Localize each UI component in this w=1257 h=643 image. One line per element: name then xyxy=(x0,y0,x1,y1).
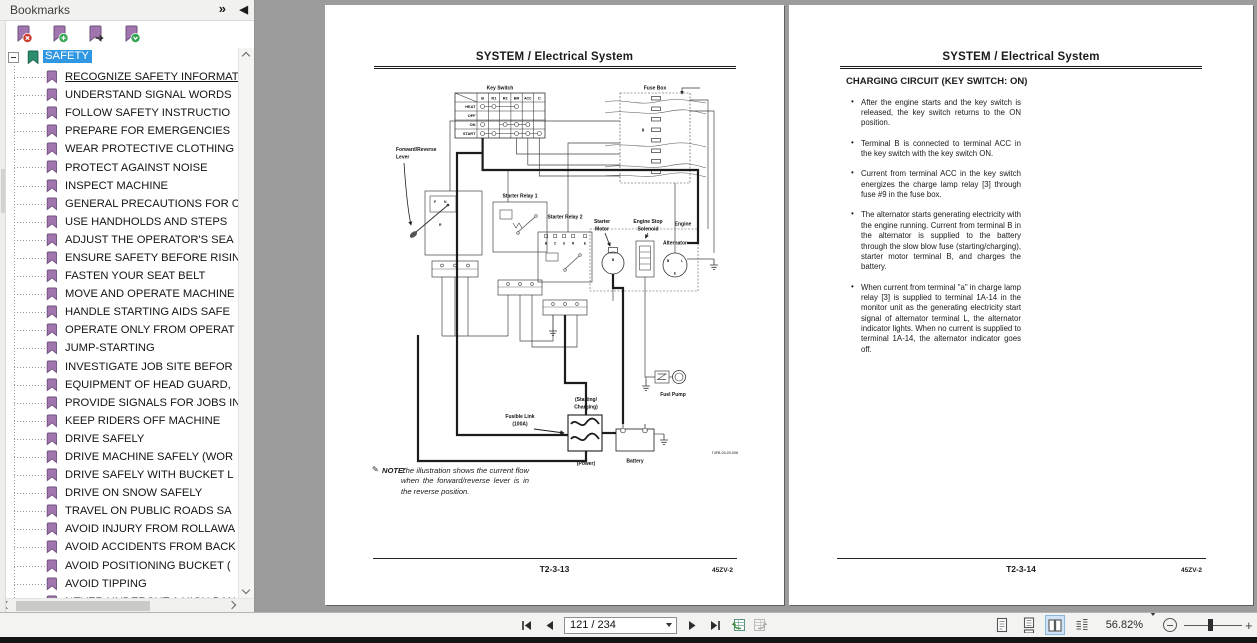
bookmark-item-label[interactable]: RECOGNIZE SAFETY INFORMAT xyxy=(65,71,238,83)
zoom-level[interactable]: 56.82% xyxy=(1099,619,1143,631)
scroll-right-icon[interactable] xyxy=(228,601,236,609)
bookmark-item-label[interactable]: PROVIDE SIGNALS FOR JOBS IN xyxy=(65,397,238,409)
bookmark-item-label[interactable]: GENERAL PRECAUTIONS FOR C xyxy=(65,198,238,210)
electrical-diagram: Key Switch B R1 R2 BR ACC C HEAT OFF ON … xyxy=(350,83,760,473)
doc-code: 45ZV-2 xyxy=(1181,567,1202,574)
zoom-slider-handle[interactable] xyxy=(1208,619,1213,631)
bookmark-item-label[interactable]: JUMP-STARTING xyxy=(65,342,155,354)
page-number-value[interactable]: 121 / 234 xyxy=(565,619,662,631)
bookmark-item-label[interactable]: AVOID POSITIONING BUCKET ( xyxy=(65,560,231,572)
engine-label: Engine xyxy=(675,222,692,228)
zoom-slider-track[interactable] xyxy=(1184,625,1242,626)
bookmark-item[interactable]: WEAR PROTECTIVE CLOTHING xyxy=(7,140,238,158)
alternator-b: B xyxy=(667,259,670,263)
scrollbar-thumb[interactable] xyxy=(16,601,150,611)
bullet-item: •After the engine starts and the key swi… xyxy=(861,98,1021,129)
bullet-marker: • xyxy=(851,138,854,149)
bookmark-item-label[interactable]: INSPECT MACHINE xyxy=(65,180,168,192)
expand-bookmark-button[interactable] xyxy=(124,25,141,44)
bookmark-item[interactable]: INVESTIGATE JOB SITE BEFOR xyxy=(7,358,238,376)
lever-f: F xyxy=(434,200,436,204)
remove-bookmark-button[interactable] xyxy=(16,25,33,44)
bookmark-item[interactable]: ENSURE SAFETY BEFORE RISIN xyxy=(7,249,238,267)
previous-view-button[interactable] xyxy=(730,616,746,634)
bookmark-expand-icon xyxy=(124,25,141,44)
bookmark-item[interactable]: ADJUST THE OPERATOR'S SEA xyxy=(7,231,238,249)
bookmark-item[interactable]: FASTEN YOUR SEAT BELT xyxy=(7,267,238,285)
relay2-r: R xyxy=(572,242,575,246)
bookmark-item-label[interactable]: AVOID ACCIDENTS FROM BACK xyxy=(65,541,236,553)
key-row-heat: HEAT xyxy=(465,104,476,109)
bookmark-item-label[interactable]: ADJUST THE OPERATOR'S SEA xyxy=(65,234,234,246)
relay2-s: S xyxy=(563,242,565,246)
zoom-in-button[interactable]: + xyxy=(1245,618,1253,633)
next-bookmark-button[interactable] xyxy=(88,25,105,44)
bookmark-item[interactable]: USE HANDHOLDS AND STEPS xyxy=(7,213,238,231)
key-col-r1: R1 xyxy=(491,96,497,101)
collapse-node-icon[interactable] xyxy=(8,52,19,63)
bookmark-item-label[interactable]: DRIVE SAFELY WITH BUCKET L xyxy=(65,469,233,481)
bullet-marker: • xyxy=(851,168,854,179)
bookmark-item-label[interactable]: DRIVE ON SNOW SAFELY xyxy=(65,487,202,499)
next-view-button[interactable] xyxy=(753,616,769,634)
pdf-reader-window: Bookmarks » ◀ xyxy=(0,0,1257,643)
bookmark-item-label[interactable]: EQUIPMENT OF HEAD GUARD, xyxy=(65,379,231,391)
footer-rule xyxy=(373,558,737,559)
lever-label-2: Lever xyxy=(396,155,409,161)
key-col-br: BR xyxy=(514,96,520,101)
panel-collapse-icon[interactable]: ◀ xyxy=(240,3,248,16)
bookmark-item-label[interactable]: HANDLE STARTING AIDS SAFE xyxy=(65,306,230,318)
bullet-item: •Current from terminal ACC in the key sw… xyxy=(861,169,1021,200)
bookmark-item[interactable]: MOVE AND OPERATE MACHINE xyxy=(7,285,238,303)
bookmark-root-row[interactable]: SAFETY xyxy=(7,48,238,67)
scroll-down-icon[interactable] xyxy=(242,586,250,594)
bookmarks-panel-title: Bookmarks xyxy=(10,3,70,17)
panel-tab-strip xyxy=(0,21,6,612)
key-row-off: OFF xyxy=(468,113,476,118)
fuel-pump-label: Fuel Pump xyxy=(660,392,686,398)
bookmark-item-label[interactable]: TRAVEL ON PUBLIC ROADS SA xyxy=(65,505,232,517)
bookmarks-tree: SAFETY RECOGNIZE SAFETY INFORMAT UNDERST… xyxy=(7,48,238,598)
bookmarks-panel: Bookmarks » ◀ xyxy=(0,0,255,612)
figure-code: T4FB-03-03-006 xyxy=(712,451,738,455)
bookmarks-horizontal-scrollbar[interactable] xyxy=(0,598,254,612)
bookmark-list: RECOGNIZE SAFETY INFORMAT UNDERSTAND SIG… xyxy=(7,68,238,598)
bookmark-item-label[interactable]: AVOID INJURY FROM ROLLAWA xyxy=(65,523,235,535)
bookmark-item[interactable]: RECOGNIZE SAFETY INFORMAT xyxy=(7,68,238,86)
lever-r: R xyxy=(439,223,442,227)
bullet-list: •After the engine starts and the key swi… xyxy=(861,98,1021,356)
key-switch-label: Key Switch xyxy=(487,86,514,92)
bookmark-root-label[interactable]: SAFETY xyxy=(43,50,92,63)
zoom-controls: 56.82% + xyxy=(991,613,1257,637)
next-view-icon xyxy=(753,617,769,633)
continuous-view-button[interactable] xyxy=(1018,615,1038,635)
page-title: SYSTEM / Electrical System xyxy=(325,51,784,63)
starter-motor-label-1: Starter xyxy=(594,219,610,225)
page-combo-caret-icon[interactable] xyxy=(662,618,676,633)
starter-motor-b: B xyxy=(612,258,615,262)
last-page-button[interactable] xyxy=(707,616,723,634)
zoom-slider[interactable] xyxy=(1184,617,1242,633)
bookmark-item[interactable]: DRIVE MACHINE SAFELY (WOR xyxy=(7,448,238,466)
key-col-acc: ACC xyxy=(524,97,532,101)
key-col-r2: R2 xyxy=(503,96,509,101)
bookmark-delete-icon xyxy=(16,25,33,44)
bookmark-item[interactable]: HANDLE STARTING AIDS SAFE xyxy=(7,303,238,321)
bookmark-item[interactable]: PROVIDE SIGNALS FOR JOBS IN xyxy=(7,394,238,412)
bullet-item: •Terminal B is connected to terminal ACC… xyxy=(861,139,1021,160)
bookmark-item-label[interactable]: WEAR PROTECTIVE CLOTHING xyxy=(65,143,234,155)
bookmark-item-label[interactable]: DRIVE MACHINE SAFELY (WOR xyxy=(65,451,233,463)
zoom-options-caret-icon[interactable] xyxy=(1150,616,1156,634)
starter-motor-label-2: Motor xyxy=(595,227,609,233)
bookmark-item-label[interactable]: KEEP RIDERS OFF MACHINE xyxy=(65,415,220,427)
bookmark-item[interactable]: FOLLOW SAFETY INSTRUCTIO xyxy=(7,104,238,122)
bookmark-item-label[interactable]: DRIVE SAFELY xyxy=(65,433,144,445)
zoom-out-button[interactable] xyxy=(1163,618,1177,632)
document-area: SYSTEM / Electrical System Key Switch B … xyxy=(256,0,1257,612)
bookmark-item[interactable]: JUMP-STARTING xyxy=(7,339,238,357)
bookmarks-vertical-scrollbar[interactable] xyxy=(238,48,254,598)
fusible-link-label-1: Fusible Link xyxy=(505,414,534,420)
bookmark-item[interactable]: PREPARE FOR EMERGENCIES xyxy=(7,122,238,140)
page-right: SYSTEM / Electrical System CHARGING CIRC… xyxy=(789,5,1253,605)
bookmark-item[interactable]: AVOID ACCIDENTS FROM BACK xyxy=(7,538,238,556)
solenoid-label-1: Engine Stop xyxy=(633,219,662,225)
lever-n: N xyxy=(444,200,447,204)
alternator-e: E xyxy=(674,272,676,276)
bullet-item: •The alternator starts generating electr… xyxy=(861,210,1021,272)
bookmark-item[interactable]: INSPECT MACHINE xyxy=(7,177,238,195)
scroll-up-icon[interactable] xyxy=(242,52,250,60)
page-number-combo[interactable]: 121 / 234 xyxy=(564,617,677,634)
bullet-marker: • xyxy=(851,209,854,220)
bookmark-item-label[interactable]: PREPARE FOR EMERGENCIES xyxy=(65,125,230,137)
page-left: SYSTEM / Electrical System Key Switch B … xyxy=(325,5,784,605)
bookmark-item[interactable]: OPERATE ONLY FROM OPERAT xyxy=(7,321,238,339)
bookmark-item[interactable]: KEEP RIDERS OFF MACHINE xyxy=(7,412,238,430)
bullet-item: •When current from terminal "a" in charg… xyxy=(861,283,1021,356)
solenoid-label-2: Solenoid xyxy=(637,227,658,233)
two-page-continuous-view-button[interactable] xyxy=(1072,615,1092,635)
bookmark-item-label[interactable]: USE HANDHOLDS AND STEPS xyxy=(65,216,227,228)
bookmark-item[interactable]: AVOID TIPPING xyxy=(7,575,238,593)
next-page-button[interactable] xyxy=(684,616,700,634)
bullet-marker: • xyxy=(851,282,854,293)
bookmark-add-icon xyxy=(52,25,69,44)
bookmark-item-label[interactable]: MOVE AND OPERATE MACHINE xyxy=(65,288,235,300)
page-title: SYSTEM / Electrical System xyxy=(789,51,1253,63)
fuse-box-label: Fuse Box xyxy=(644,86,667,92)
previous-view-icon xyxy=(730,617,746,633)
note-text: The illustration shows the current flow … xyxy=(401,466,529,496)
bookmarks-toolbar xyxy=(7,21,238,48)
relay2-e: E xyxy=(584,242,586,246)
bookmark-item-label[interactable]: PROTECT AGAINST NOISE xyxy=(65,162,208,174)
bookmark-item[interactable]: PROTECT AGAINST NOISE xyxy=(7,158,238,176)
key-row-on: ON xyxy=(470,122,476,127)
doc-code: 45ZV-2 xyxy=(712,567,733,574)
previous-page-button[interactable] xyxy=(541,616,557,634)
bookmark-arrow-icon xyxy=(88,25,105,44)
relay2-c: C xyxy=(554,242,557,246)
bookmark-item[interactable]: DRIVE SAFELY WITH BUCKET L xyxy=(7,466,238,484)
first-page-button[interactable] xyxy=(518,616,534,634)
title-rule xyxy=(840,66,1202,69)
alternator-l: L xyxy=(681,259,683,263)
fusible-link-label-2: (100A) xyxy=(512,422,528,428)
bookmark-item[interactable]: AVOID INJURY FROM ROLLAWA xyxy=(7,520,238,538)
window-bottom-edge xyxy=(0,637,1257,643)
note-label: NOTE: xyxy=(382,466,406,476)
fuse-9-label: 9 xyxy=(642,128,645,133)
bookmark-item-label[interactable]: AVOID TIPPING xyxy=(65,578,147,590)
key-row-start: START xyxy=(463,131,476,136)
single-page-view-button[interactable] xyxy=(991,615,1011,635)
bookmark-item-label[interactable]: FASTEN YOUR SEAT BELT xyxy=(65,270,205,282)
bookmark-item[interactable]: TRAVEL ON PUBLIC ROADS SA xyxy=(7,502,238,520)
bookmarks-panel-header: Bookmarks » ◀ xyxy=(0,0,254,21)
two-page-view-button[interactable] xyxy=(1045,615,1065,635)
note-icon: ✎ xyxy=(372,465,379,476)
bookmark-item-label[interactable]: FOLLOW SAFETY INSTRUCTIO xyxy=(65,107,230,119)
bookmark-item-label[interactable]: OPERATE ONLY FROM OPERAT xyxy=(65,324,235,336)
bookmark-item[interactable]: GENERAL PRECAUTIONS FOR C xyxy=(7,195,238,213)
note-block: ✎ NOTE: The illustration shows the curre… xyxy=(374,466,529,497)
add-bookmark-button[interactable] xyxy=(52,25,69,44)
key-col-c: C xyxy=(538,96,541,101)
bullet-marker: • xyxy=(851,97,854,108)
bookmark-flag-icon xyxy=(27,50,40,70)
bookmark-item-label[interactable]: INVESTIGATE JOB SITE BEFOR xyxy=(65,361,233,373)
bookmark-item[interactable]: DRIVE ON SNOW SAFELY xyxy=(7,484,238,502)
panel-options-icon[interactable]: » xyxy=(219,1,226,16)
starter-relay-2-label: Starter Relay 2 xyxy=(547,215,582,221)
bookmark-item[interactable]: AVOID POSITIONING BUCKET ( xyxy=(7,557,238,575)
bookmark-item[interactable]: DRIVE SAFELY xyxy=(7,430,238,448)
page-navigation: 121 / 234 xyxy=(518,613,769,637)
lever-label-1: Forward/Reverse xyxy=(396,147,437,153)
battery-label: Battery xyxy=(626,459,643,465)
bookmark-item[interactable]: UNDERSTAND SIGNAL WORDS xyxy=(7,86,238,104)
relay2-b: B xyxy=(545,242,548,246)
key-col-b: B xyxy=(481,96,484,101)
status-bar: 121 / 234 xyxy=(0,612,1257,637)
footer-rule xyxy=(837,558,1206,559)
title-rule xyxy=(374,66,736,69)
section-heading: CHARGING CIRCUIT (KEY SWITCH: ON) xyxy=(846,76,1253,87)
bookmark-item[interactable]: EQUIPMENT OF HEAD GUARD, xyxy=(7,376,238,394)
bookmark-item-label[interactable]: UNDERSTAND SIGNAL WORDS xyxy=(65,89,232,101)
bookmark-item-label[interactable]: ENSURE SAFETY BEFORE RISIN xyxy=(65,252,238,264)
